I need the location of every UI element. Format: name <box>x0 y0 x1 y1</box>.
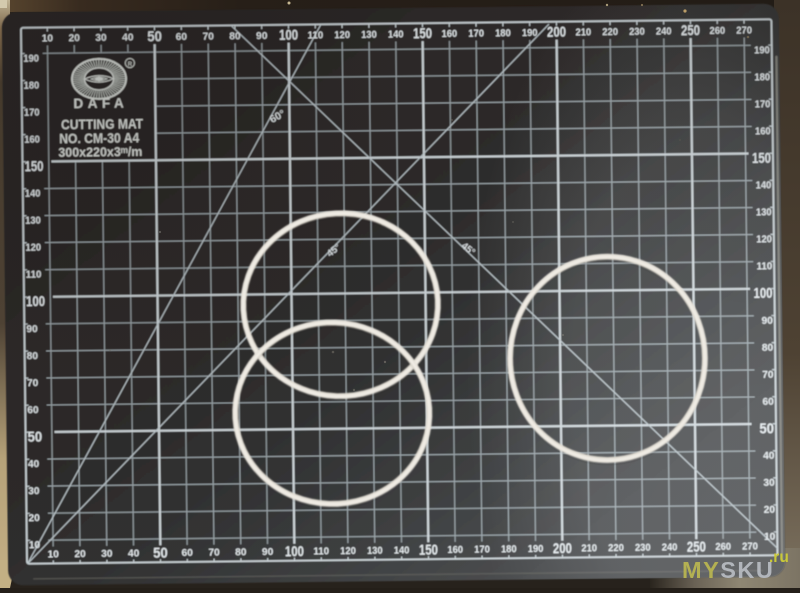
svg-text:.ru: .ru <box>769 549 789 566</box>
svg-text:MYSKU: MYSKU <box>682 557 774 583</box>
